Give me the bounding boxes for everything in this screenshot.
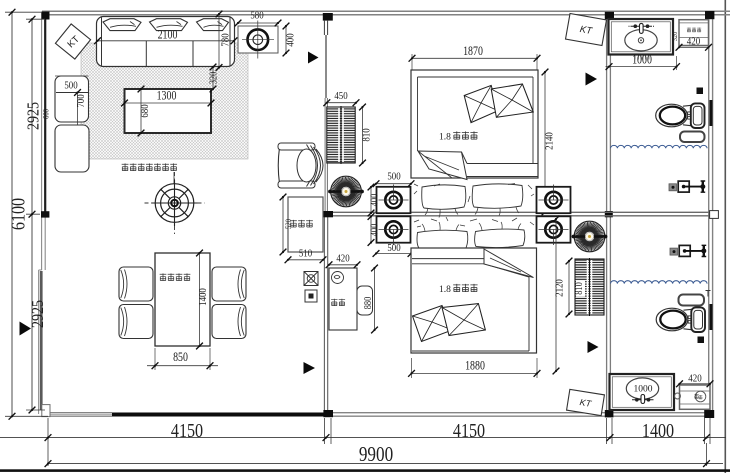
svg-text:850: 850 <box>173 350 188 364</box>
svg-text:320: 320 <box>670 32 679 42</box>
svg-text:500: 500 <box>387 242 401 254</box>
svg-text:2140: 2140 <box>544 132 556 150</box>
svg-text:400: 400 <box>285 33 297 47</box>
svg-text:400: 400 <box>370 194 381 207</box>
svg-text:1870: 1870 <box>463 44 483 58</box>
svg-text:400: 400 <box>370 224 381 237</box>
svg-text:510: 510 <box>299 248 313 260</box>
svg-text:1.8: 1.8 <box>439 285 451 295</box>
svg-text:420: 420 <box>687 36 701 48</box>
svg-text:1400: 1400 <box>642 420 674 442</box>
svg-text:780: 780 <box>220 33 232 47</box>
svg-text:4150: 4150 <box>171 420 203 442</box>
svg-text:420: 420 <box>336 253 350 265</box>
svg-text:500: 500 <box>387 171 401 183</box>
svg-text:680: 680 <box>139 104 151 118</box>
svg-text:450: 450 <box>334 90 348 102</box>
svg-text:420: 420 <box>688 373 702 385</box>
svg-text:580: 580 <box>250 10 264 22</box>
svg-text:810: 810 <box>361 128 373 142</box>
svg-text:1.8: 1.8 <box>439 133 451 143</box>
svg-text:600: 600 <box>42 109 51 119</box>
svg-text:500: 500 <box>64 80 78 92</box>
svg-text:2120: 2120 <box>554 279 566 297</box>
svg-text:1880: 1880 <box>465 359 485 373</box>
svg-text:2100: 2100 <box>158 28 178 42</box>
svg-text:2925: 2925 <box>28 300 47 328</box>
svg-text:2925: 2925 <box>24 102 43 130</box>
svg-text:700: 700 <box>75 94 87 108</box>
svg-text:1000: 1000 <box>634 385 653 395</box>
svg-text:320: 320 <box>209 72 220 85</box>
svg-text:520: 520 <box>284 219 293 229</box>
svg-text:1400: 1400 <box>197 288 209 306</box>
svg-text:1000: 1000 <box>632 52 652 66</box>
svg-text:4150: 4150 <box>453 420 485 442</box>
svg-text:9900: 9900 <box>359 442 393 466</box>
svg-text:810: 810 <box>574 282 585 295</box>
svg-text:1300: 1300 <box>157 89 177 103</box>
svg-text:880: 880 <box>363 297 374 310</box>
